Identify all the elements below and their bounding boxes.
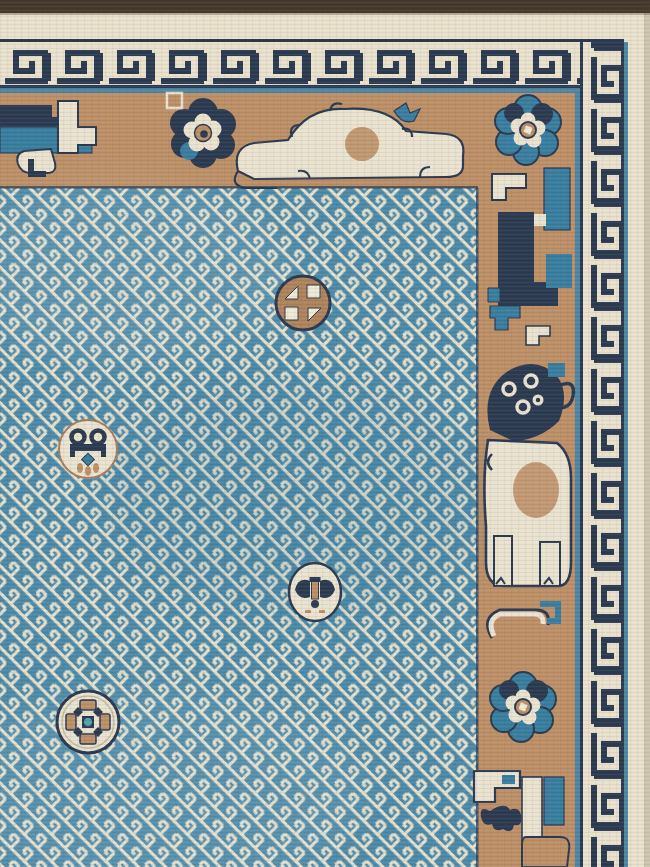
- rug-canvas: [0, 0, 650, 867]
- right-edge-shadow: [644, 0, 650, 867]
- warp-texture: [0, 0, 650, 867]
- rug-photo: [0, 0, 650, 867]
